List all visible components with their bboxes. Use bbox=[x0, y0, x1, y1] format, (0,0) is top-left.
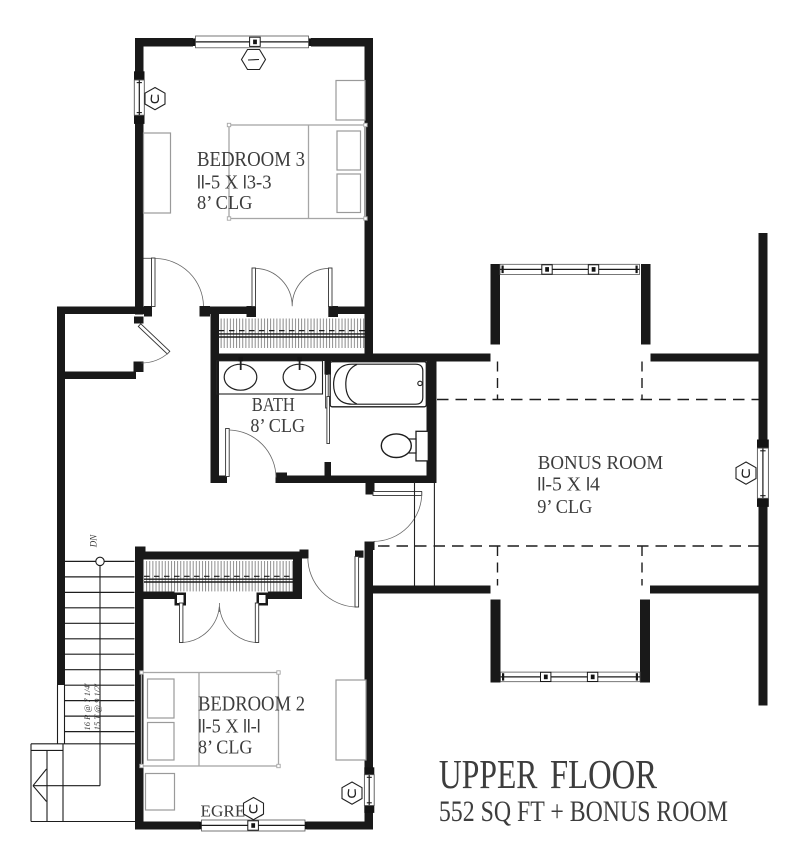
svg-text:FLOOR: FLOOR bbox=[550, 751, 658, 797]
svg-text:ll-5 X l4: ll-5 X l4 bbox=[537, 474, 600, 496]
svg-text:DN: DN bbox=[89, 534, 99, 548]
svg-text:BATH: BATH bbox=[252, 394, 295, 416]
svg-text:8’ CLG: 8’ CLG bbox=[198, 737, 253, 759]
svg-text:16 R @ 7 1/4′: 16 R @ 7 1/4′ bbox=[82, 683, 92, 730]
svg-text:ll-5 X ll-l: ll-5 X ll-l bbox=[198, 716, 261, 738]
svg-text:ll-5 X l3-3: ll-5 X l3-3 bbox=[197, 172, 272, 194]
svg-text:8’ CLG: 8’ CLG bbox=[197, 192, 253, 214]
svg-text:BEDROOM 2: BEDROOM 2 bbox=[198, 692, 305, 716]
svg-text:8’ CLG: 8’ CLG bbox=[250, 415, 305, 437]
svg-text:9’ CLG: 9’ CLG bbox=[537, 496, 592, 518]
svg-text:15 T @ 9 1/2′: 15 T @ 9 1/2′ bbox=[92, 684, 102, 731]
svg-text:BONUS ROOM: BONUS ROOM bbox=[538, 452, 663, 474]
svg-text:BEDROOM 3: BEDROOM 3 bbox=[197, 147, 305, 171]
svg-text:552 SQ FT + BONUS ROOM: 552 SQ FT + BONUS ROOM bbox=[439, 795, 728, 828]
svg-text:UPPER: UPPER bbox=[439, 751, 538, 797]
